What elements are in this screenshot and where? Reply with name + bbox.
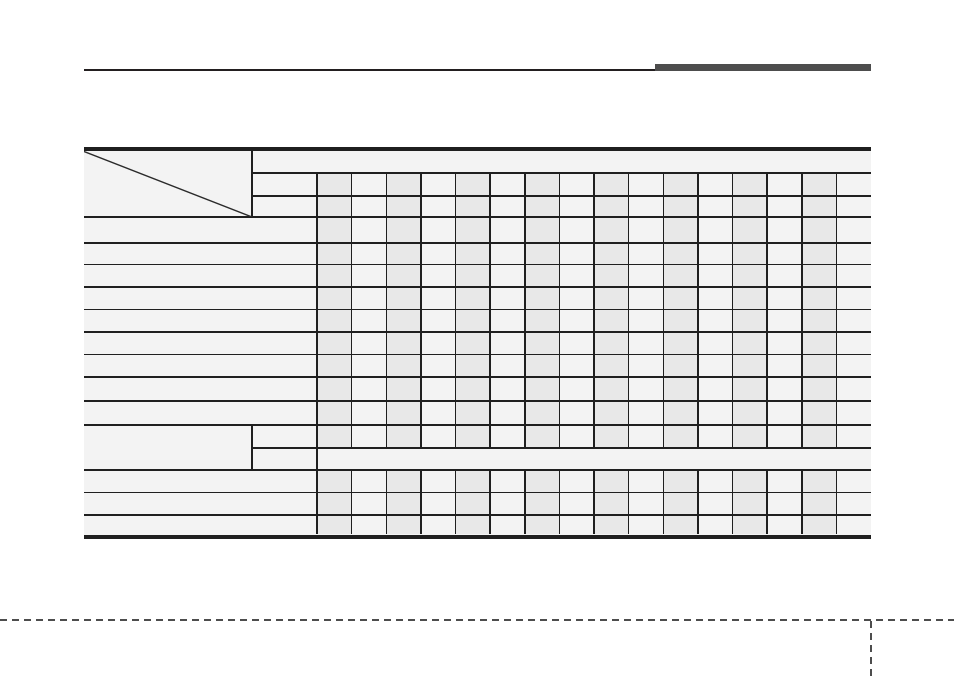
grid-line-h: [84, 469, 871, 471]
grid-line-h: [84, 400, 871, 402]
grid-line-v: [593, 173, 595, 448]
grid-line-v: [697, 173, 699, 448]
grid-line-h: [252, 447, 871, 449]
header-rule-line: [84, 69, 655, 71]
grid-line-v: [316, 173, 318, 534]
grid-line-v: [524, 470, 526, 534]
grid-line-h: [84, 264, 871, 266]
maintenance-schedule-table: [84, 147, 871, 540]
grid-line-v: [386, 470, 388, 534]
grid-line-v: [766, 173, 768, 448]
grid-line-v: [766, 470, 768, 534]
grid-line-v: [420, 173, 422, 448]
grid-line-h: [84, 309, 871, 311]
grid-line-h: [84, 424, 871, 426]
grid-line-h: [84, 354, 871, 356]
grid-line-v: [559, 173, 561, 448]
grid-line-v: [420, 470, 422, 534]
grid-line-v: [628, 470, 630, 534]
grid-line-v: [732, 173, 734, 448]
grid-line-v: [455, 470, 457, 534]
grid-line-v: [559, 470, 561, 534]
grid-line-h: [84, 514, 871, 516]
grid-line-v: [697, 470, 699, 534]
grid-line-v: [628, 173, 630, 448]
grid-line-h: [84, 376, 871, 378]
grid-line-v: [836, 173, 838, 448]
footer-dashed-line-vertical: [870, 621, 872, 679]
grid-line-v: [593, 470, 595, 534]
grid-line-h: [84, 242, 871, 244]
manual-page: [0, 0, 954, 685]
table-border-bottom: [84, 535, 871, 539]
grid-line-v: [801, 470, 803, 534]
grid-line-v: [489, 173, 491, 448]
grid-line-h: [252, 195, 871, 197]
grid-line-v: [663, 173, 665, 448]
grid-line-v: [455, 173, 457, 448]
footer-dashed-line-horizontal: [0, 619, 954, 621]
grid-line-v: [351, 470, 353, 534]
grid-line-v: [489, 470, 491, 534]
diagonal-split-line: [84, 151, 252, 218]
grid-line-v: [386, 173, 388, 448]
grid-line-v: [524, 173, 526, 448]
grid-line-v: [801, 173, 803, 448]
merged-row-band: [317, 448, 871, 470]
grid-line-v: [732, 470, 734, 534]
grid-line-v: [351, 173, 353, 448]
grid-line-v: [251, 425, 253, 470]
grid-line-v: [663, 470, 665, 534]
grid-line-h: [84, 331, 871, 333]
header-accent-bar: [655, 64, 871, 72]
grid-line-h: [252, 172, 871, 174]
grid-line-h: [84, 286, 871, 288]
grid-line-v: [836, 470, 838, 534]
grid-line-h: [84, 492, 871, 494]
